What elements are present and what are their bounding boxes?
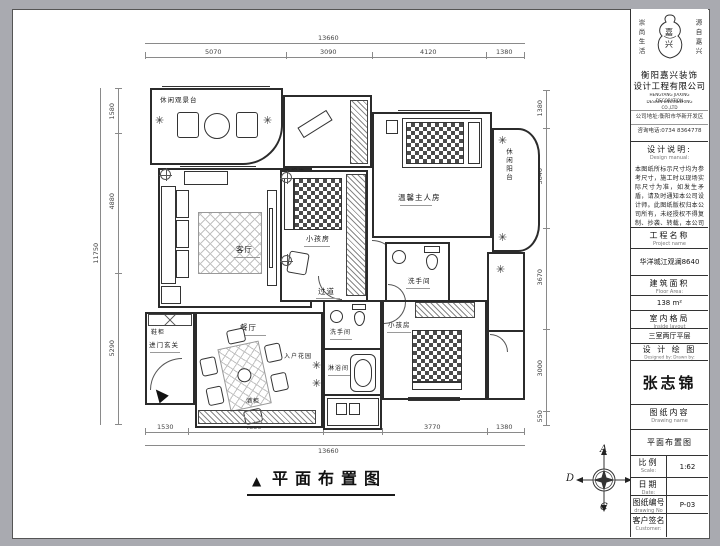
bed-blanket	[406, 122, 464, 164]
fine-print	[304, 246, 330, 247]
dim-line	[145, 57, 525, 58]
design-note-header: 设计说明: Design manual:	[631, 141, 708, 163]
dim-right-2: 3670	[537, 269, 544, 286]
plant-icon: ✳	[498, 232, 507, 243]
ceiling-light-icon	[281, 255, 292, 266]
dim-left-total: 11750	[93, 243, 100, 264]
window	[408, 397, 460, 402]
sofa-back	[161, 186, 176, 284]
dining-chair	[199, 356, 218, 377]
dim-top-0: 5070	[205, 49, 222, 56]
plant-icon: ✳	[312, 360, 321, 371]
customer-label: 客户签名	[631, 516, 666, 526]
sofa-cushion	[176, 220, 189, 248]
slogan-left: 崇尚生活	[636, 19, 646, 57]
title-block: 崇尚生活 源自嘉兴 嘉 兴 衡阳嘉兴装饰 设计工程有限公司 HENGYANG J…	[630, 9, 708, 537]
floor-area-label-en: Floor Area:	[631, 289, 708, 295]
project-name-label-en: Project name	[631, 241, 708, 247]
layout-label: 室内格局	[631, 311, 708, 324]
shoe-cabinet	[148, 314, 192, 326]
dim-tick	[543, 425, 550, 426]
dim-bottom-3: 3770	[424, 424, 441, 431]
customer-value	[667, 514, 708, 537]
dim-line	[145, 43, 525, 44]
dim-tick	[145, 428, 146, 435]
scale-label-cell: 比例 Scale:	[631, 456, 667, 477]
dim-tick	[524, 52, 525, 59]
layout-value: 三室两厅平层	[631, 329, 708, 343]
company-logo-icon	[652, 13, 688, 65]
room-right-strip	[487, 252, 525, 400]
layout-header: 室内格局 Inside layout	[631, 310, 708, 328]
dim-tick	[115, 424, 122, 425]
ceiling-light-icon	[281, 172, 292, 183]
fine-print	[400, 205, 432, 206]
logo-char-2: 兴	[665, 41, 673, 49]
bathroom-sink	[392, 250, 406, 264]
designer-label: 设 计 绘 图	[631, 344, 708, 355]
room-label-corridor: 过道	[318, 288, 335, 296]
label-wine-cabinet: 酒柜	[246, 399, 260, 405]
dim-line	[546, 90, 547, 426]
compass-label-south: C	[600, 502, 608, 513]
dim-top-total: 13660	[318, 35, 339, 42]
dining-chair	[226, 327, 247, 344]
drawing-number-row: 图纸编号 drawing No P-03	[631, 495, 708, 513]
project-name-label: 工程名称	[631, 228, 708, 241]
dim-right-3: 3000	[537, 360, 544, 377]
fine-print	[330, 339, 352, 340]
room-label-shower: 淋浴间	[328, 366, 349, 372]
design-note-title: 设计说明:	[631, 142, 708, 155]
scale-label-en: Scale:	[631, 468, 666, 474]
dim-bottom-total: 13660	[318, 448, 339, 455]
dim-right-4: 550	[537, 410, 544, 422]
drawing-caption: 平面布置图	[272, 471, 387, 487]
plant-icon: ✳	[312, 378, 321, 389]
dim-bottom-0: 1530	[157, 424, 174, 431]
drawing-number-value: P-03	[667, 496, 708, 513]
dining-chair	[205, 385, 224, 406]
dim-tick	[115, 133, 122, 134]
dim-right-0: 1380	[537, 100, 544, 117]
date-value	[667, 478, 708, 495]
kitchen-sink	[349, 403, 360, 415]
design-note-body: 本图纸所标示尺寸均为参考尺寸，施工时以现场实际尺寸为准，如发生矛盾，请及时通知本…	[631, 163, 708, 227]
designer-label-en: Designed by: Drawn by:	[637, 355, 702, 360]
company-phone: 咨询电话:0734 8364778	[631, 124, 708, 136]
dim-tick	[286, 52, 287, 59]
round-table	[204, 113, 230, 139]
dim-line	[145, 445, 525, 446]
designer-name-cell: 张志锦	[631, 360, 708, 404]
drawing-name-label: 图纸内容	[631, 405, 708, 418]
dim-tick	[543, 90, 550, 91]
dim-tick	[188, 428, 189, 435]
plant-icon: ✳	[496, 264, 505, 275]
scale-value: 1:62	[667, 456, 708, 477]
bed-pillow	[284, 178, 294, 230]
dim-top-2: 4120	[420, 49, 437, 56]
drawing-name-header: 图纸内容 Drawing name	[631, 404, 708, 429]
fine-print	[316, 298, 340, 299]
room-label-bath-master: 洗手间	[408, 278, 431, 285]
dim-top-1: 3090	[320, 49, 337, 56]
drawing-name-value: 平面布置图	[631, 430, 708, 455]
designer-name: 张志锦	[631, 361, 708, 404]
design-note-section: 本图纸所标示尺寸均为参考尺寸，施工时以现场实际尺寸为准，如发生矛盾，请及时通知本…	[631, 163, 708, 227]
label-shoe-cabinet: 鞋柜	[151, 330, 165, 336]
dim-tick	[372, 52, 373, 59]
tv-screen	[269, 208, 273, 268]
bathroom-sink	[330, 310, 343, 323]
floor-area-header: 建筑面积 Floor Area:	[631, 275, 708, 295]
bathtub-basin	[354, 359, 372, 387]
slogan-right: 源自嘉兴	[693, 19, 703, 57]
dim-tick	[543, 411, 550, 412]
dim-tick	[382, 428, 383, 435]
side-table	[161, 286, 181, 304]
plant-icon: ✳	[263, 115, 272, 126]
customer-label-en: Customer:	[631, 526, 666, 532]
drawing-number-label: 图纸编号	[631, 498, 666, 508]
dim-left-0: 1580	[109, 103, 116, 120]
room-label-master: 温馨主人房	[398, 194, 441, 202]
project-name-value: 华洋城江观澜8640	[631, 249, 708, 275]
date-label-cell: 日期 Date:	[631, 478, 667, 495]
rug	[198, 212, 262, 274]
armchair	[177, 112, 199, 138]
fine-print	[328, 375, 350, 376]
date-label: 日期	[631, 480, 666, 490]
scale-label: 比例	[631, 458, 666, 468]
sofa-cushion	[176, 190, 189, 218]
fine-print	[387, 332, 411, 333]
toilet-tank	[424, 246, 440, 253]
wall	[323, 348, 382, 350]
drawing-number-label-cell: 图纸编号 drawing No	[631, 496, 667, 513]
design-note-title-en: Design manual:	[631, 155, 708, 161]
caption-underline	[247, 494, 395, 496]
dim-tick	[524, 428, 525, 435]
wardrobe-cabinet	[346, 174, 366, 296]
fine-print	[234, 257, 260, 258]
floor-area-value-cell: 138 m²	[631, 295, 708, 310]
floor-area-value: 138 m²	[631, 296, 708, 310]
drawing-canvas: 13660 5070 3090 4120 1380 1530 4850 2130…	[0, 0, 720, 546]
sofa-cushion	[176, 250, 189, 278]
kitchen-sink	[336, 403, 347, 415]
scale-row: 比例 Scale: 1:62	[631, 455, 708, 477]
wine-cabinet	[198, 410, 316, 424]
window	[162, 86, 270, 91]
dim-tick	[543, 128, 550, 129]
room-label-balcony-top: 休闲观景台	[160, 97, 198, 104]
compass-label-north: A	[600, 444, 607, 455]
window	[398, 110, 470, 115]
dim-tick	[543, 228, 550, 229]
bed-pillow	[468, 122, 480, 164]
room-label-entry: 进门玄关	[149, 342, 179, 349]
project-name-value-cell: 华洋城江观澜8640	[631, 248, 708, 275]
drawing-name-value-cell: 平面布置图	[631, 429, 708, 455]
wardrobe-cabinet	[350, 100, 368, 164]
bed-footboard	[412, 382, 462, 390]
ceiling-light-icon	[160, 169, 171, 180]
designer-header: 设 计 绘 图 Designed by: Drawn by:	[631, 343, 708, 360]
dim-left-1: 4880	[109, 193, 116, 210]
wall	[323, 394, 382, 396]
dim-tick	[115, 88, 122, 89]
room-label-entry-garden: 入户花园	[284, 354, 312, 360]
bed-blanket	[294, 178, 342, 230]
drawing-name-label-en: Drawing name	[631, 418, 708, 424]
project-name-header: 工程名称 Project name	[631, 227, 708, 248]
wall	[487, 330, 525, 332]
fine-print	[150, 352, 180, 353]
toilet-tank	[352, 304, 366, 310]
floor-area-label: 建筑面积	[631, 276, 708, 289]
customer-row: 客户签名 Customer:	[631, 513, 708, 537]
room-label-kids1: 小孩房	[306, 236, 330, 243]
wardrobe-cabinet	[415, 302, 475, 318]
dim-left-2: 5290	[109, 340, 116, 357]
room-label-living: 客厅	[236, 246, 253, 254]
customer-label-cell: 客户签名 Customer:	[631, 514, 667, 537]
room-label-kids2: 小孩房	[388, 322, 411, 329]
layout-value-cell: 三室两厅平层	[631, 328, 708, 343]
date-row: 日期 Date:	[631, 477, 708, 495]
dim-bottom-4: 1380	[496, 424, 513, 431]
dim-tick	[487, 428, 488, 435]
bed-blanket	[412, 330, 462, 382]
caption-triangle-icon: ▲	[252, 475, 261, 487]
dim-line	[118, 88, 119, 425]
plant-icon: ✳	[155, 115, 164, 126]
dim-top-3: 1380	[496, 49, 513, 56]
title-block-logo-section: 崇尚生活 源自嘉兴 嘉 兴 衡阳嘉兴装饰 设计工程有限公司 HENGYANG J…	[631, 9, 708, 141]
armchair	[236, 112, 258, 138]
dim-tick	[486, 52, 487, 59]
compass-label-west: D	[566, 473, 574, 484]
dim-line	[100, 88, 101, 425]
nightstand	[386, 120, 398, 134]
company-name-line2: 设计工程有限公司	[631, 80, 708, 92]
dim-tick	[145, 52, 146, 59]
dim-tick	[115, 273, 122, 274]
logo-char-1: 嘉	[665, 29, 673, 37]
room-label-balcony-right: 休闲阳台	[505, 148, 512, 182]
plant-icon: ✳	[498, 135, 507, 146]
dining-chair	[264, 342, 283, 363]
dim-line	[145, 432, 525, 433]
dim-tick	[543, 329, 550, 330]
dining-chair	[270, 372, 289, 393]
company-address: 公司地址:衡阳市华新开发区	[631, 110, 708, 122]
room-label-bath-guest: 洗手间	[330, 330, 351, 336]
sofa-chaise	[184, 171, 228, 185]
fine-print	[406, 288, 430, 289]
